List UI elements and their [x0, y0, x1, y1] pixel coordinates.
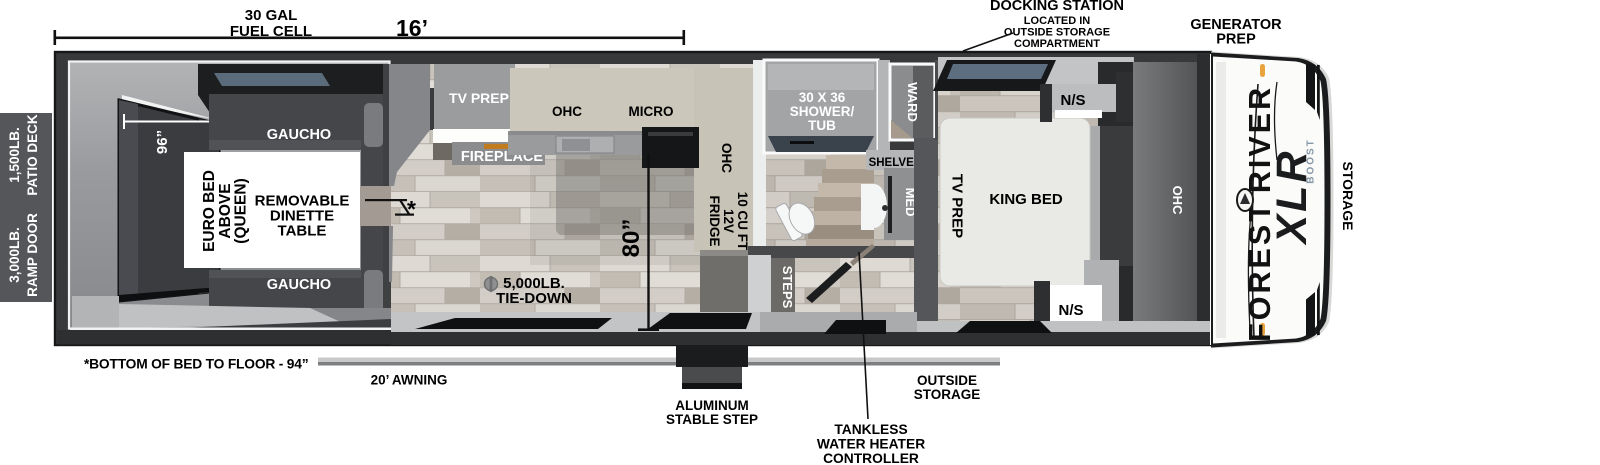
svg-text:12V: 12V [721, 209, 736, 233]
svg-text:SHOWER/: SHOWER/ [790, 104, 855, 119]
svg-text:1,500LB.: 1,500LB. [7, 127, 22, 183]
svg-text:SHELVES: SHELVES [869, 157, 922, 169]
svg-text:WARD: WARD [905, 82, 920, 122]
svg-text:30 GAL: 30 GAL [245, 7, 298, 24]
svg-text:OUTSIDE STORAGE: OUTSIDE STORAGE [1004, 27, 1110, 39]
svg-text:LOCATED IN: LOCATED IN [1024, 15, 1090, 27]
svg-text:TV PREP: TV PREP [449, 90, 509, 106]
svg-text:KING BED: KING BED [989, 191, 1063, 208]
svg-text:ALUMINUM: ALUMINUM [675, 398, 749, 413]
svg-text:TIE-DOWN: TIE-DOWN [496, 290, 572, 307]
svg-text:96”: 96” [154, 130, 171, 154]
svg-text:TUB: TUB [808, 118, 836, 133]
svg-text:N/S: N/S [1060, 92, 1085, 109]
svg-text:PREP: PREP [1216, 32, 1256, 48]
svg-text:COMPARTMENT: COMPARTMENT [1014, 38, 1100, 50]
svg-text:80”: 80” [618, 219, 645, 258]
svg-text:STEPS: STEPS [780, 266, 795, 309]
svg-text:PATIO DECK: PATIO DECK [25, 114, 40, 196]
svg-text:BOOST: BOOST [1306, 138, 1317, 184]
svg-text:16’: 16’ [396, 15, 428, 41]
svg-text:FRIDGE: FRIDGE [707, 195, 722, 246]
svg-text:RAMP DOOR: RAMP DOOR [25, 213, 40, 297]
svg-text:GAUCHO: GAUCHO [267, 127, 331, 143]
svg-text:30 X 36: 30 X 36 [799, 90, 846, 105]
svg-text:(QUEEN): (QUEEN) [233, 178, 250, 243]
svg-text:EURO BED: EURO BED [201, 170, 218, 252]
svg-text:OHC: OHC [552, 104, 582, 119]
svg-text:OHC: OHC [1170, 186, 1185, 216]
svg-text:DOCKING STATION: DOCKING STATION [990, 0, 1124, 14]
svg-text:3,000LB.: 3,000LB. [7, 227, 22, 283]
svg-text:CONTROLLER: CONTROLLER [823, 451, 919, 465]
svg-text:GAUCHO: GAUCHO [267, 277, 331, 293]
svg-text:WATER HEATER: WATER HEATER [817, 437, 925, 452]
svg-text:STABLE STEP: STABLE STEP [666, 412, 758, 427]
svg-text:ABOVE: ABOVE [217, 183, 234, 238]
svg-text:10 CU FT: 10 CU FT [735, 192, 750, 251]
svg-text:TABLE: TABLE [278, 223, 327, 240]
svg-text:20’ AWNING: 20’ AWNING [371, 373, 448, 388]
svg-text:TV PREP: TV PREP [949, 174, 966, 238]
svg-text:TANKLESS: TANKLESS [834, 422, 907, 437]
svg-text:*: * [407, 196, 416, 222]
svg-text:MICRO: MICRO [629, 104, 674, 119]
svg-text:STORAGE: STORAGE [914, 387, 981, 402]
svg-text:STORAGE: STORAGE [1340, 162, 1356, 231]
svg-text:OUTSIDE: OUTSIDE [917, 373, 977, 388]
svg-text:*BOTTOM OF BED TO FLOOR - 94”: *BOTTOM OF BED TO FLOOR - 94” [84, 357, 308, 372]
svg-text:OHC: OHC [719, 143, 734, 173]
svg-text:N/S: N/S [1058, 302, 1083, 319]
